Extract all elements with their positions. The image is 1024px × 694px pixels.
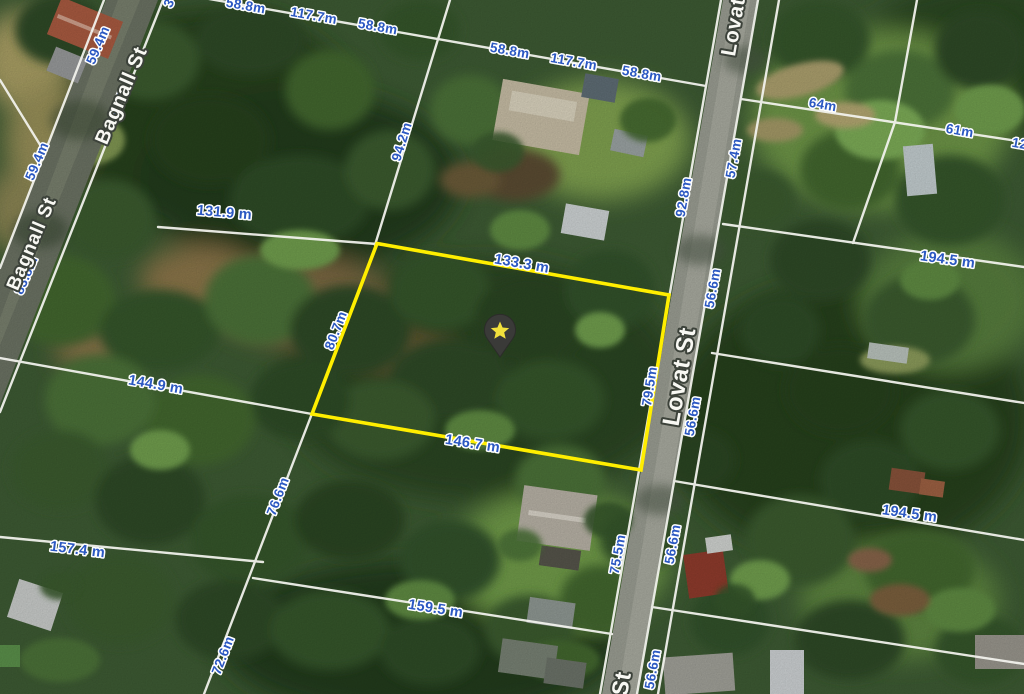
measurement-label-partial: 12: [1011, 135, 1024, 152]
aerial-map[interactable]: 58.8m 117.7m 58.8m 58.8m 117.7m 58.8m 3 …: [0, 0, 1024, 694]
map-viewport[interactable]: 58.8m 117.7m 58.8m 58.8m 117.7m 58.8m 3 …: [0, 0, 1024, 694]
aerial-imagery: [0, 0, 1024, 694]
